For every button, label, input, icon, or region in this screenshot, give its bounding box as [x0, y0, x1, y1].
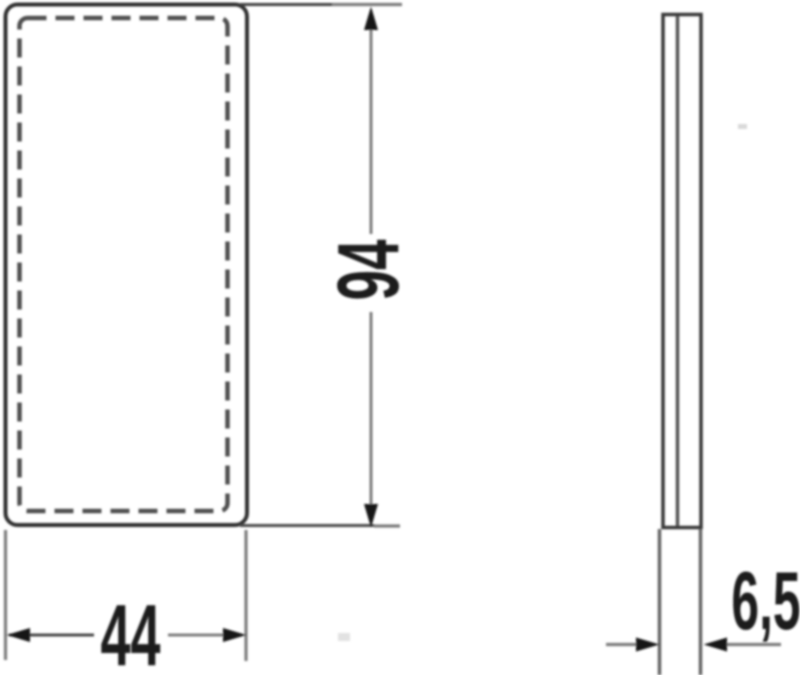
svg-text:44: 44: [100, 587, 160, 675]
svg-text:6,5: 6,5: [731, 554, 800, 647]
svg-text:94: 94: [320, 239, 417, 300]
